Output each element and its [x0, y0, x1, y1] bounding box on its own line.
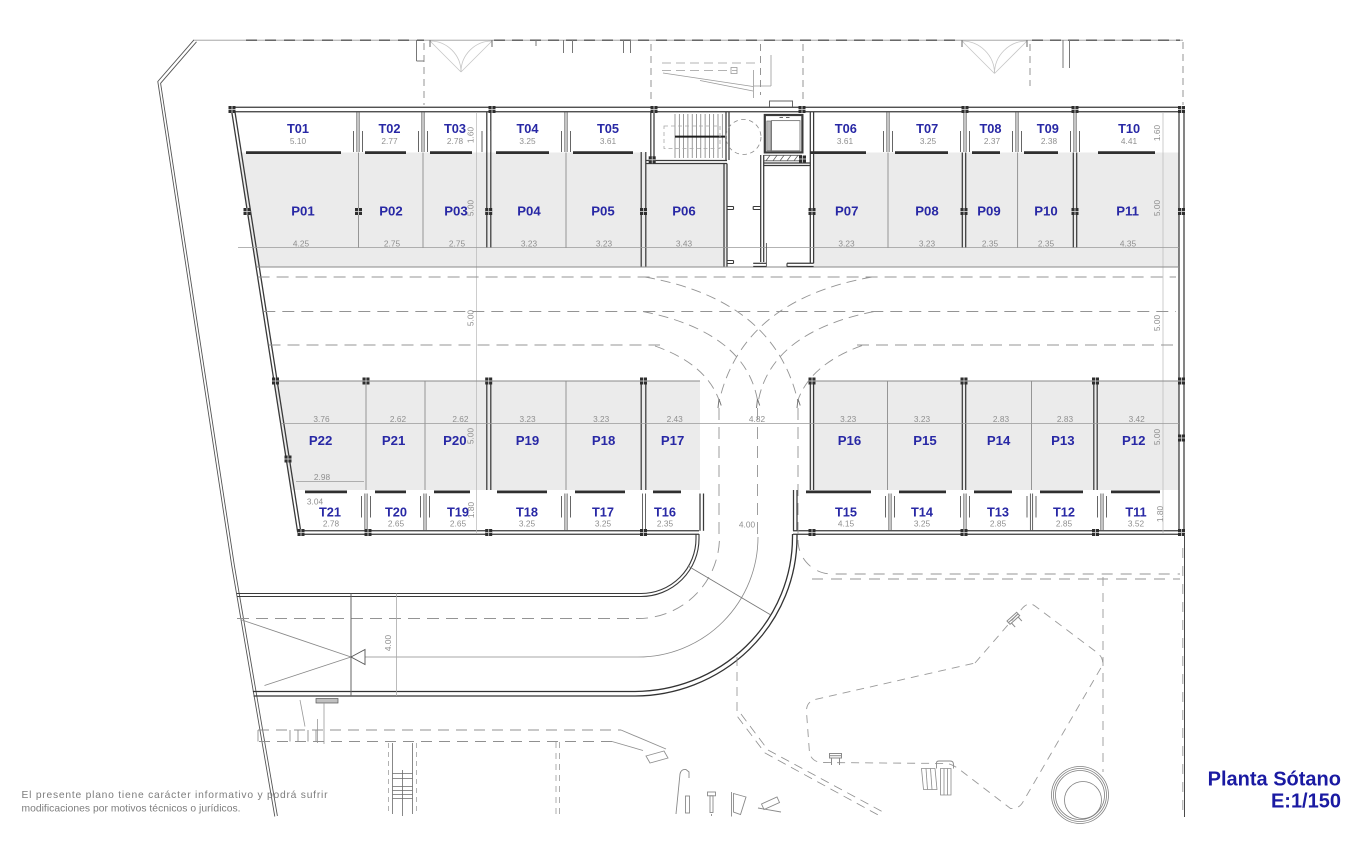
svg-text:T12: T12 [1053, 504, 1075, 519]
svg-text:E:1/150: E:1/150 [1271, 791, 1341, 813]
svg-text:2.65: 2.65 [450, 518, 467, 528]
svg-text:T10: T10 [1118, 121, 1140, 136]
svg-text:P15: P15 [913, 433, 936, 448]
svg-text:3.25: 3.25 [519, 136, 536, 146]
svg-text:P10: P10 [1034, 204, 1057, 219]
svg-text:Planta Sótano: Planta Sótano [1208, 769, 1341, 791]
svg-text:T04: T04 [516, 121, 539, 136]
svg-text:3.25: 3.25 [595, 518, 612, 528]
svg-text:2.75: 2.75 [449, 239, 466, 249]
svg-text:P16: P16 [838, 433, 861, 448]
svg-text:P04: P04 [517, 204, 541, 219]
svg-text:P21: P21 [382, 433, 405, 448]
svg-text:3.23: 3.23 [840, 414, 857, 424]
svg-text:P05: P05 [591, 204, 614, 219]
svg-text:4.35: 4.35 [1120, 239, 1137, 249]
svg-text:1.60: 1.60 [1152, 125, 1162, 142]
svg-text:P02: P02 [379, 204, 402, 219]
svg-text:4.41: 4.41 [1121, 136, 1138, 146]
svg-text:2.83: 2.83 [993, 414, 1010, 424]
svg-text:3.25: 3.25 [914, 518, 931, 528]
svg-text:T16: T16 [654, 504, 676, 519]
svg-text:3.23: 3.23 [919, 239, 936, 249]
svg-text:P12: P12 [1122, 433, 1145, 448]
svg-text:5.00: 5.00 [1152, 200, 1162, 217]
svg-text:4.15: 4.15 [838, 518, 855, 528]
svg-text:3.52: 3.52 [1128, 518, 1145, 528]
svg-text:2.75: 2.75 [384, 239, 401, 249]
svg-text:2.78: 2.78 [447, 136, 464, 146]
svg-text:3.43: 3.43 [676, 239, 693, 249]
svg-text:2.37: 2.37 [984, 136, 1001, 146]
svg-text:3.23: 3.23 [596, 239, 613, 249]
svg-text:T21: T21 [319, 504, 341, 519]
svg-text:5.00: 5.00 [466, 200, 476, 217]
svg-text:2.98: 2.98 [314, 472, 331, 482]
svg-text:P20: P20 [443, 433, 466, 448]
svg-text:3.23: 3.23 [838, 239, 855, 249]
svg-text:5.00: 5.00 [466, 428, 476, 445]
svg-text:5.10: 5.10 [290, 136, 307, 146]
svg-text:3.23: 3.23 [914, 414, 931, 424]
svg-text:2.77: 2.77 [381, 136, 398, 146]
svg-text:4.25: 4.25 [293, 239, 310, 249]
svg-text:1.60: 1.60 [466, 127, 476, 144]
svg-text:P03: P03 [444, 204, 467, 219]
svg-text:P08: P08 [915, 204, 938, 219]
svg-text:4.00: 4.00 [739, 520, 756, 530]
svg-text:2.38: 2.38 [1041, 136, 1058, 146]
svg-text:T03: T03 [444, 121, 466, 136]
svg-text:3.61: 3.61 [837, 136, 854, 146]
svg-text:5.00: 5.00 [1152, 429, 1162, 446]
svg-text:P22: P22 [309, 433, 332, 448]
svg-text:T06: T06 [835, 121, 857, 136]
svg-text:2.65: 2.65 [388, 518, 405, 528]
svg-text:T17: T17 [592, 504, 614, 519]
svg-text:modificaciones por motivos téc: modificaciones por motivos técnicos o ju… [22, 804, 241, 815]
svg-text:T01: T01 [287, 121, 309, 136]
svg-text:T08: T08 [979, 121, 1001, 136]
svg-text:3.23: 3.23 [593, 414, 610, 424]
svg-text:5.00: 5.00 [1152, 315, 1162, 332]
svg-text:T11: T11 [1125, 504, 1146, 519]
svg-text:T18: T18 [516, 504, 538, 519]
svg-text:2.83: 2.83 [1057, 414, 1074, 424]
svg-text:P07: P07 [835, 204, 858, 219]
svg-text:3.23: 3.23 [520, 414, 537, 424]
svg-text:T14: T14 [911, 504, 934, 519]
svg-text:2.35: 2.35 [982, 239, 999, 249]
svg-text:T15: T15 [835, 504, 857, 519]
svg-text:3.25: 3.25 [920, 136, 937, 146]
svg-text:P14: P14 [987, 433, 1011, 448]
svg-text:T09: T09 [1037, 121, 1059, 136]
svg-text:2.43: 2.43 [667, 414, 684, 424]
svg-text:3.25: 3.25 [519, 518, 536, 528]
svg-text:2.35: 2.35 [657, 518, 674, 528]
svg-text:T07: T07 [916, 121, 938, 136]
svg-text:5.00: 5.00 [466, 310, 476, 327]
svg-text:2.62: 2.62 [390, 414, 407, 424]
svg-text:P19: P19 [516, 433, 539, 448]
svg-text:P13: P13 [1051, 433, 1074, 448]
svg-text:T13: T13 [987, 504, 1009, 519]
svg-text:T20: T20 [385, 504, 407, 519]
svg-text:1.80: 1.80 [466, 502, 476, 519]
svg-text:2.62: 2.62 [452, 414, 469, 424]
svg-text:2.78: 2.78 [323, 518, 340, 528]
svg-text:P09: P09 [977, 204, 1000, 219]
svg-text:2.85: 2.85 [990, 518, 1007, 528]
svg-text:P17: P17 [661, 433, 684, 448]
svg-text:P06: P06 [672, 204, 695, 219]
svg-text:4.82: 4.82 [749, 414, 766, 424]
svg-text:3.76: 3.76 [313, 414, 330, 424]
svg-text:P11: P11 [1116, 204, 1139, 219]
svg-text:2.85: 2.85 [1056, 518, 1073, 528]
svg-text:T05: T05 [597, 121, 619, 136]
svg-text:P18: P18 [592, 433, 615, 448]
svg-text:3.61: 3.61 [600, 136, 617, 146]
svg-text:P01: P01 [291, 204, 314, 219]
svg-text:4.00: 4.00 [383, 635, 393, 652]
svg-text:3.42: 3.42 [1129, 414, 1146, 424]
svg-text:3.23: 3.23 [521, 239, 538, 249]
svg-text:1.80: 1.80 [1155, 506, 1165, 523]
svg-text:El presente plano tiene caráct: El presente plano tiene carácter informa… [22, 790, 329, 801]
svg-text:2.35: 2.35 [1038, 239, 1055, 249]
svg-text:T02: T02 [378, 121, 400, 136]
